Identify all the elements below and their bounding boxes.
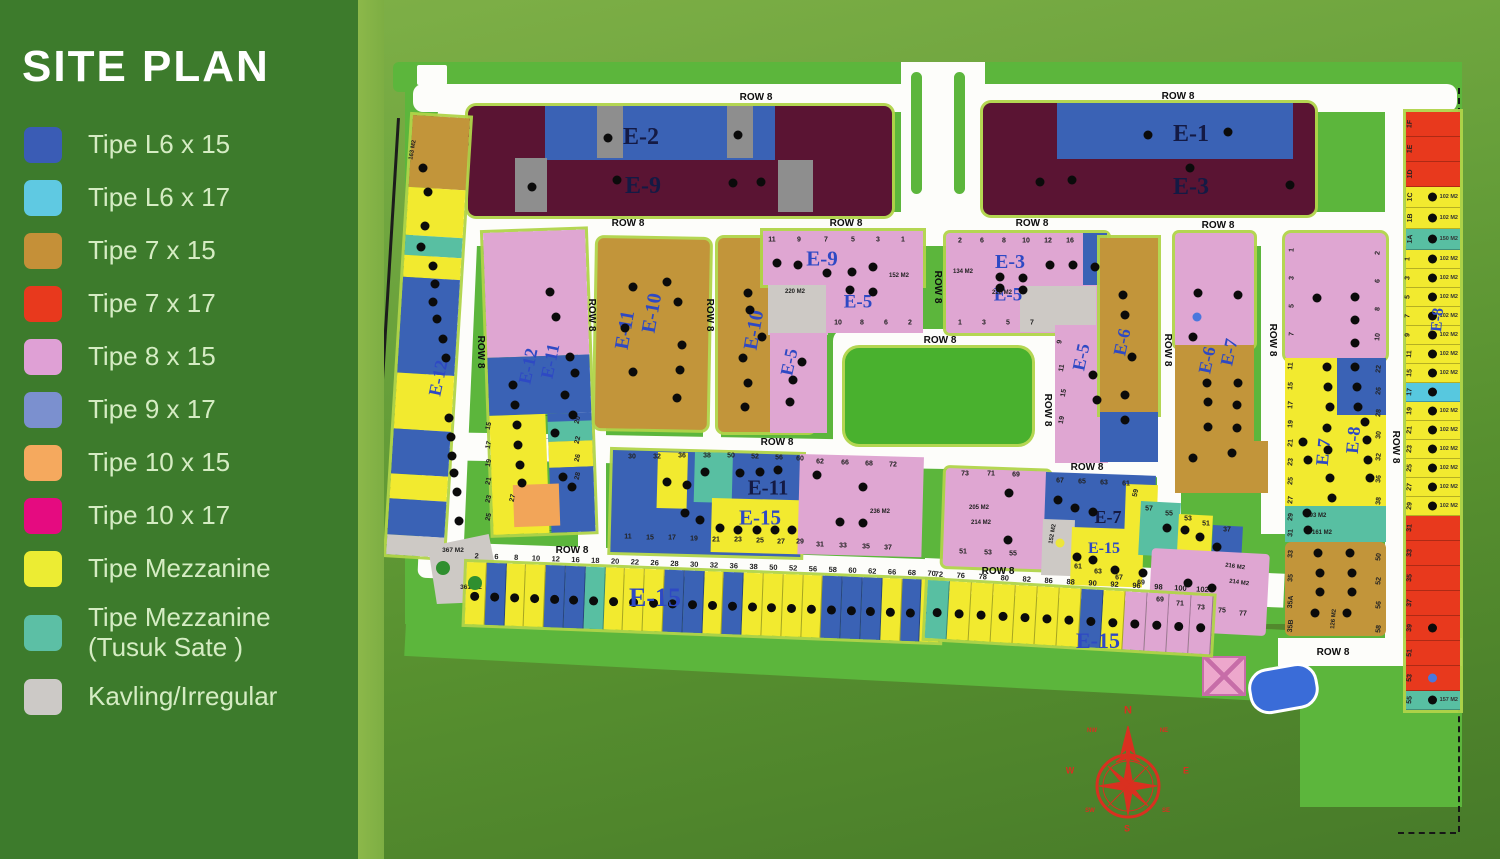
lot-dot: [468, 576, 482, 590]
lot-row-55: 55157 M2: [1406, 691, 1460, 710]
lot-number: 52: [789, 563, 798, 572]
lot-dot: [1184, 579, 1193, 588]
lot-dot: [701, 468, 710, 477]
label-25: 25: [756, 538, 764, 545]
lot-number: 31: [1406, 524, 1414, 532]
label-e-3: E-3: [995, 252, 1025, 272]
lot-dot: [1089, 556, 1098, 565]
lot-dot: [1428, 293, 1437, 302]
lot-dot: [996, 273, 1005, 282]
strip-e15-bottom-lot-66: 66: [880, 578, 902, 641]
lot-dot: [1351, 293, 1360, 302]
lot-dot: [429, 298, 438, 307]
label-s: S: [1124, 825, 1130, 834]
lot-dot: [976, 610, 986, 620]
lot-dot: [954, 609, 964, 619]
lot-row-15: 15102 M2: [1406, 364, 1460, 383]
lot-dot: [1004, 536, 1013, 545]
label-55: 55: [1165, 511, 1173, 518]
legend-item-tipe-mezzanine-tusuk-sate-: Tipe Mezzanine (Tusuk Sate ): [24, 603, 277, 663]
lot-row-23: 23102 M2: [1406, 440, 1460, 459]
lot-number: 32: [710, 560, 719, 569]
lot-dot: [1326, 403, 1335, 412]
label-11: 11: [768, 237, 775, 244]
label-2: 2: [958, 238, 962, 245]
lot-dot: [431, 280, 440, 289]
lot-row-25: 25102 M2: [1406, 459, 1460, 478]
lot-dot: [1173, 622, 1183, 632]
lot-number: 1B: [1407, 213, 1415, 223]
label-1: 1: [958, 320, 962, 327]
label-134-m2: 134 M2: [953, 269, 973, 275]
label-3: 3: [982, 320, 986, 327]
legend-item-label: Tipe 9 x 17: [88, 395, 216, 425]
lot-dot: [429, 262, 438, 271]
lot-dot: [1323, 424, 1332, 433]
label-11: 11: [1058, 364, 1066, 373]
label-32: 32: [653, 454, 661, 461]
legend-item-label: Tipe L6 x 17: [88, 183, 230, 213]
lot-number: 1D: [1407, 169, 1415, 179]
lot-area: 102 M2: [1440, 332, 1458, 338]
legend-item-label: Tipe 8 x 15: [88, 342, 216, 372]
lot-dot: [798, 358, 807, 367]
lot-dot: [729, 179, 738, 188]
road-vertical-5: [1385, 88, 1405, 653]
label-e-3: E-3: [1173, 175, 1209, 199]
label-15: 15: [1060, 389, 1068, 398]
lot-number: 62: [868, 566, 877, 575]
label-e-8: E-8: [1429, 307, 1447, 332]
lot-number: 1A: [1407, 234, 1415, 244]
label-53: 53: [1184, 516, 1192, 523]
label-7: 7: [1030, 320, 1034, 327]
lot-number: 1C: [1407, 192, 1415, 202]
label-33: 33: [839, 543, 847, 550]
label-23: 23: [734, 537, 742, 544]
label-26: 26: [1375, 387, 1383, 395]
lot-dot: [1428, 350, 1437, 359]
legend-items: Tipe L6 x 15Tipe L6 x 17Tipe 7 x 15Tipe …: [24, 126, 277, 716]
label-35b: 35B: [1287, 619, 1295, 632]
lot-area: 102 M2: [1440, 294, 1458, 300]
lot-number: 20: [611, 557, 620, 566]
lot-dot: [589, 596, 598, 605]
lot-row-27: 27102 M2: [1406, 478, 1460, 497]
label-15: 15: [646, 535, 654, 542]
label-60: 60: [796, 456, 804, 463]
lot-dot: [419, 164, 428, 173]
label-51: 51: [959, 549, 967, 556]
lot-dot: [417, 243, 426, 252]
label-61: 61: [1074, 564, 1082, 571]
lot-dot: [846, 606, 855, 615]
lot-dot: [787, 604, 796, 613]
legend-item-label: Tipe 7 x 17: [88, 289, 216, 319]
lot-number: 1: [1404, 257, 1411, 262]
strip-e12-left-segment-7: [390, 473, 448, 501]
strip-e15-bottom-lot-8: 8: [504, 564, 526, 627]
strip-e15-bottom-lot-50: 50: [761, 573, 783, 636]
label-6: 6: [980, 238, 984, 245]
label-50: 50: [727, 453, 735, 460]
strip-e12-left-segment-0: [409, 115, 470, 190]
lot-dot: [448, 452, 457, 461]
label-e-5: E-5: [844, 293, 873, 312]
label-e-7: E-7: [1095, 508, 1122, 526]
lot-dot: [1364, 456, 1373, 465]
lot-dot: [1313, 294, 1322, 303]
strip-e12-left-segment-4: [397, 277, 460, 376]
legend-item-tipe-9-x-17: Tipe 9 x 17: [24, 391, 277, 429]
label-sw: SW: [1085, 808, 1095, 814]
label-71: 71: [987, 471, 995, 478]
lot-number: 60: [848, 566, 857, 575]
lot-row-1F: 1F: [1406, 112, 1460, 137]
lot-dot: [1128, 353, 1137, 362]
lot-dot: [673, 394, 682, 403]
lot-row-3: 3102 M2: [1406, 269, 1460, 288]
label-27: 27: [777, 539, 785, 546]
block-e9-gray-2: [778, 160, 813, 212]
lot-dot: [1233, 401, 1242, 410]
lot-dot: [1428, 388, 1437, 397]
lot-number: 76: [956, 571, 965, 580]
lot-dot: [1303, 509, 1312, 518]
legend-item-label: Kavling/Irregular: [88, 682, 277, 712]
lot-dot: [511, 401, 520, 410]
label-58: 58: [1375, 625, 1383, 633]
lot-dot: [1234, 291, 1243, 300]
lot-area: 102 M2: [1440, 194, 1458, 200]
lot-dot: [728, 602, 737, 611]
legend-item-tipe-l6-x-15: Tipe L6 x 15: [24, 126, 277, 164]
lot-dot: [609, 597, 618, 606]
label-e: E: [1183, 767, 1189, 776]
lot-dot: [569, 596, 578, 605]
lot-dot: [869, 263, 878, 272]
lot-dot: [510, 593, 519, 602]
lot-dot: [1203, 379, 1212, 388]
lot-dot: [424, 188, 433, 197]
legend-swatch: [24, 551, 62, 587]
lot-dot: [1353, 383, 1362, 392]
label-56: 56: [775, 455, 783, 462]
lot-dot: [1233, 424, 1242, 433]
label-row-8: ROW 8: [1267, 324, 1277, 357]
label-row-8: ROW 8: [1202, 221, 1235, 231]
median-2: [954, 72, 965, 194]
label-38: 38: [1375, 497, 1383, 505]
label-161-m2: 161 M2: [1312, 530, 1332, 536]
lot-dot: [1428, 255, 1437, 264]
lot-number: 10: [532, 553, 541, 562]
lot-dot: [568, 483, 577, 492]
label-73: 73: [961, 471, 969, 478]
lot-dot: [789, 376, 798, 385]
lot-dot: [528, 183, 537, 192]
lot-dot: [1351, 339, 1360, 348]
lot-number: 27: [1406, 483, 1414, 491]
label-15: 15: [1287, 382, 1295, 390]
label-7: 7: [1288, 332, 1295, 337]
lot-number: 22: [631, 557, 640, 566]
lot-area: 102 M2: [1440, 446, 1458, 452]
lot-dot: [788, 526, 797, 535]
lot-area: 102 M2: [1440, 215, 1458, 221]
lot-dot: [663, 478, 672, 487]
lot-dot: [1428, 624, 1437, 633]
label-2: 2: [908, 320, 912, 327]
legend-swatch: [24, 286, 62, 322]
lot-row-1A: 1A150 M2: [1406, 229, 1460, 250]
label-row-8: ROW 8: [982, 567, 1015, 577]
lot-number: 39: [1406, 624, 1414, 632]
lot-number: 1F: [1406, 120, 1414, 129]
lot-dot: [1428, 369, 1437, 378]
lot-dot: [663, 278, 672, 287]
lot-dot: [758, 333, 767, 342]
lot-dot: [998, 611, 1008, 621]
lot-dot: [1152, 620, 1162, 630]
label-8: 8: [1002, 238, 1006, 245]
label-n: N: [1124, 706, 1132, 717]
label-row-8: ROW 8: [1071, 463, 1104, 473]
label-row-8: ROW 8: [1390, 431, 1400, 464]
lot-number: 6: [494, 552, 499, 561]
label-73: 73: [1197, 605, 1205, 612]
lot-number: 1E: [1406, 144, 1414, 153]
strip-e15-bottom-lot-2: 2: [465, 562, 487, 625]
lot-dot: [716, 524, 725, 533]
legend-item-label: Tipe Mezzanine: [88, 554, 271, 584]
lot-number: 66: [888, 567, 897, 576]
label-row-8: ROW 8: [761, 438, 794, 448]
label-55: 55: [1009, 551, 1017, 558]
label-93-m2: 93 M2: [1310, 513, 1327, 519]
label-37: 37: [1223, 527, 1231, 534]
lot-row-35: 35: [1406, 566, 1460, 591]
label-se: SE: [1162, 808, 1170, 814]
lot-dot: [1304, 456, 1313, 465]
lot-dot: [1299, 438, 1308, 447]
lot-dot: [826, 605, 835, 614]
lot-dot: [1064, 615, 1074, 625]
label-19: 19: [1287, 420, 1295, 428]
lot-dot: [571, 369, 580, 378]
strip-e15-bottom-lot-68: 68: [900, 579, 922, 642]
lot-dot: [807, 605, 816, 614]
lot-dot: [1019, 286, 1028, 295]
label-25: 25: [1287, 477, 1295, 485]
label-67: 67: [1056, 478, 1064, 485]
lot-dot: [1323, 363, 1332, 372]
legend-swatch: [24, 339, 62, 375]
label-30: 30: [1375, 431, 1383, 439]
label-e-9: E-9: [625, 174, 661, 198]
block-e11-e12-part-0: [483, 229, 589, 357]
legend-swatch: [24, 392, 62, 428]
lot-dot: [1019, 274, 1028, 283]
label-21: 21: [1287, 439, 1295, 447]
lot-number: 16: [571, 555, 580, 564]
lot-dot: [1224, 128, 1233, 137]
lot-dot: [747, 602, 756, 611]
strip-e15-bottom-lot-16: 16: [564, 566, 586, 629]
lot-dot: [1186, 164, 1195, 173]
block-e2-gray-1: [597, 106, 623, 158]
lot-number: 68: [908, 568, 917, 577]
lot-dot: [1089, 508, 1098, 517]
label-12: 12: [1044, 238, 1052, 245]
strip-e15-bottom-lot-30: 30: [682, 570, 704, 633]
label-11: 11: [1287, 362, 1295, 370]
lot-dot: [1361, 418, 1370, 427]
site-plan-poster: 1F1E1D1C102 M21B102 M21A150 M21102 M2310…: [0, 0, 1500, 859]
legend-swatch: [24, 180, 62, 216]
strip-e15-bottom-lot-60: 60: [840, 576, 862, 639]
legend-item-label: Tipe 10 x 15: [88, 448, 230, 478]
label-51: 51: [1202, 521, 1210, 528]
strip-e15-bottom-lot-62: 62: [860, 577, 882, 640]
lot-row-1E: 1E: [1406, 137, 1460, 162]
label-row-8: ROW 8: [556, 546, 589, 556]
lot-dot: [1046, 261, 1055, 270]
lot-row-1D: 1D: [1406, 162, 1460, 187]
legend-swatch: [24, 615, 62, 651]
lot-number: 25: [1406, 464, 1414, 472]
lot-row-51: 51: [1406, 641, 1460, 666]
label-69: 69: [1156, 597, 1164, 604]
lot-dot: [1208, 584, 1217, 593]
lot-dot: [846, 286, 855, 295]
block-e11-teal-cell: [694, 452, 733, 503]
lot-dot: [561, 391, 570, 400]
strip-e12-left-segment-1: [406, 187, 466, 238]
strip-e15-bottom-lot-12: 12: [544, 565, 566, 628]
label-220-m2: 220 M2: [785, 289, 805, 295]
median-1: [911, 72, 922, 194]
label-63: 63: [1094, 569, 1102, 576]
lot-dot: [516, 461, 525, 470]
lot-dot: [676, 366, 685, 375]
lot-number: 90: [1088, 578, 1097, 587]
lot-dot: [445, 414, 454, 423]
lot-dot: [1304, 526, 1313, 535]
lot-number: 72: [934, 569, 943, 578]
label-ne: NE: [1160, 728, 1168, 734]
lot-dot: [771, 526, 780, 535]
strip-e15-bottom-lot-52: 52: [781, 574, 803, 637]
strip-e15-bottom-lot-20: 20: [603, 567, 625, 630]
lot-dot: [744, 289, 753, 298]
lot-dot: [767, 603, 776, 612]
lot-dot: [757, 178, 766, 187]
lot-dot: [1314, 549, 1323, 558]
lot-number: 30: [690, 560, 699, 569]
label-row-8: ROW 8: [586, 299, 596, 332]
lot-number: 98: [1154, 582, 1163, 591]
lot-row-11: 11102 M2: [1406, 345, 1460, 364]
lot-number: 28: [670, 559, 679, 568]
legend-item-kavling-irregular: Kavling/Irregular: [24, 678, 277, 716]
lot-row-19: 19102 M2: [1406, 402, 1460, 421]
lot-number: 36: [729, 561, 738, 570]
label-17: 17: [1287, 401, 1295, 409]
lot-dot: [1428, 274, 1437, 283]
lot-dot: [470, 592, 479, 601]
lot-number: 26: [650, 558, 659, 567]
label-236-m2: 236 M2: [870, 509, 890, 515]
lot-number: 37: [1406, 599, 1414, 607]
lot-number: 21: [1406, 426, 1414, 434]
lot-dot: [1316, 588, 1325, 597]
lot-dot: [813, 471, 822, 480]
lot-dot: [1089, 371, 1098, 380]
lot-dot: [674, 298, 683, 307]
lot-number: 33: [1406, 549, 1414, 557]
lot-dot: [490, 593, 499, 602]
label-35: 35: [862, 544, 870, 551]
lot-dot: [773, 259, 782, 268]
lot-dot: [1020, 613, 1030, 623]
label-row-8: ROW 8: [740, 93, 773, 103]
lot-number: 82: [1022, 574, 1031, 583]
lot-number: 11: [1406, 350, 1414, 358]
lot-dot: [866, 607, 875, 616]
lot-dot: [1428, 696, 1437, 705]
lot-dot: [708, 601, 717, 610]
lot-dot: [1428, 426, 1437, 435]
lot-dot: [1428, 214, 1437, 223]
block-e11-e12-part-5: [548, 440, 593, 468]
lot-dot: [1068, 176, 1077, 185]
lot-row-29: 29102 M2: [1406, 497, 1460, 516]
label-77: 77: [1239, 611, 1247, 618]
label-152-m2: 152 M2: [889, 273, 909, 279]
label-32: 32: [1375, 453, 1383, 461]
label-38: 38: [703, 453, 711, 460]
label-5: 5: [851, 237, 855, 244]
label-30: 30: [628, 454, 636, 461]
legend-item-tipe-7-x-17: Tipe 7 x 17: [24, 285, 277, 323]
lot-number: 3: [1404, 276, 1411, 281]
lot-dot: [1346, 549, 1355, 558]
label-e-11: E-11: [748, 478, 789, 499]
lot-dot: [739, 354, 748, 363]
lot-dot: [1204, 398, 1213, 407]
lot-dot: [447, 433, 456, 442]
label-e-9: E-9: [806, 249, 838, 270]
label-75: 75: [1218, 608, 1226, 615]
lot-dot: [734, 131, 743, 140]
lot-dot: [1316, 569, 1325, 578]
strip-e15-bottom-lot-32: 32: [702, 571, 724, 634]
lot-dot: [696, 516, 705, 525]
label-e-1: E-1: [1173, 122, 1209, 146]
label-66: 66: [841, 460, 849, 467]
lot-dot: [1144, 131, 1153, 140]
label-31: 31: [1287, 529, 1295, 537]
lot-row-33: 33: [1406, 541, 1460, 566]
lot-dot: [753, 526, 762, 535]
label-e-8: E-8: [1343, 426, 1363, 454]
label-6: 6: [1374, 279, 1381, 284]
lot-number: 35: [1406, 574, 1414, 582]
lot-dot: [1189, 454, 1198, 463]
lot-number: 50: [769, 563, 778, 572]
lot-column-e8: 1F1E1D1C102 M21B102 M21A150 M21102 M2310…: [1406, 112, 1460, 710]
